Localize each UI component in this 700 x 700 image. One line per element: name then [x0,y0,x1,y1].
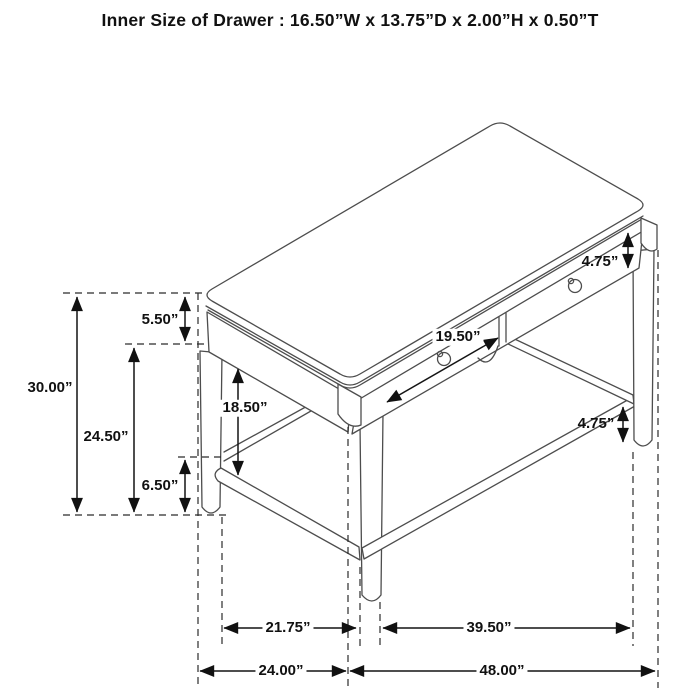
dim-label-overall-height: 30.00” [27,380,72,397]
desk-artwork [200,123,657,601]
dim-label-drawer-width: 19.50” [432,329,483,346]
dim-label-left-stretcher-height: 6.50” [142,478,179,495]
dim-label-overall-width: 48.00” [476,663,527,680]
desk-line-drawing [0,0,700,700]
dim-label-inner-depth: 21.75” [262,620,313,637]
dim-label-inner-width: 39.50” [463,620,514,637]
dim-label-right-stretcher-height: 4.75” [578,416,615,433]
drawer-knob-right [569,280,582,293]
dimension-diagram-page: Inner Size of Drawer : 16.50”W x 13.75”D… [0,0,700,700]
dim-label-drawer-height: 4.75” [582,254,619,271]
drawer-knob-left [438,353,451,366]
dim-label-overall-depth: 24.00” [255,663,306,680]
dim-label-top-apron-height: 5.50” [142,312,179,329]
dim-label-apron-stretcher-gap: 18.50” [219,400,270,417]
dim-label-apron-to-floor: 24.50” [83,429,128,446]
